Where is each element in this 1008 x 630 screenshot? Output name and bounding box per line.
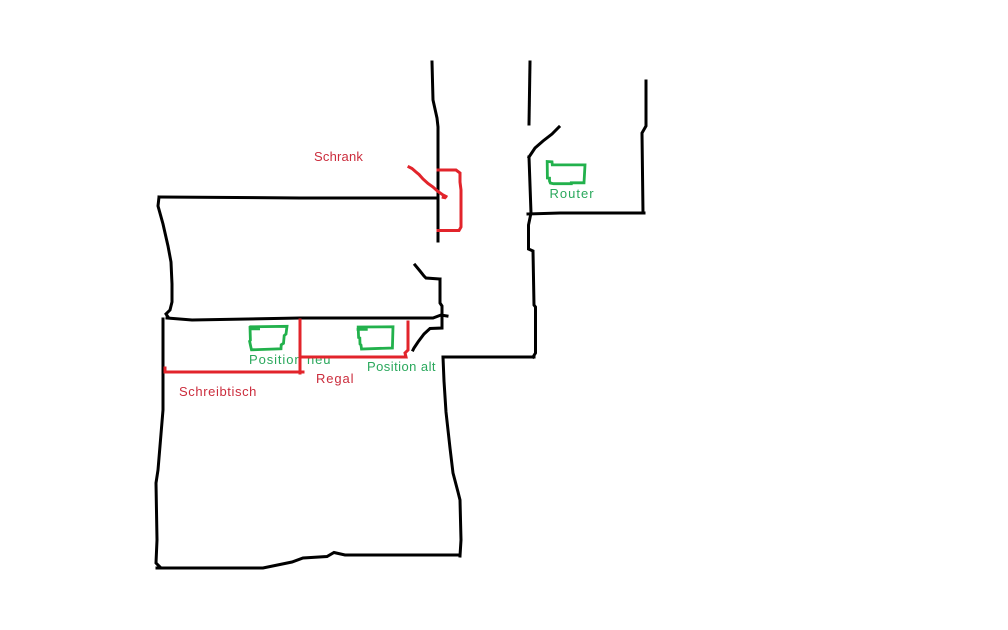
svg-text:Position neu: Position neu bbox=[249, 352, 331, 367]
svg-text:Router: Router bbox=[550, 186, 595, 201]
svg-text:Schrank: Schrank bbox=[314, 149, 363, 164]
svg-text:Position alt: Position alt bbox=[367, 359, 436, 374]
svg-text:Regal: Regal bbox=[316, 371, 354, 386]
svg-text:Schreibtisch: Schreibtisch bbox=[179, 384, 257, 399]
